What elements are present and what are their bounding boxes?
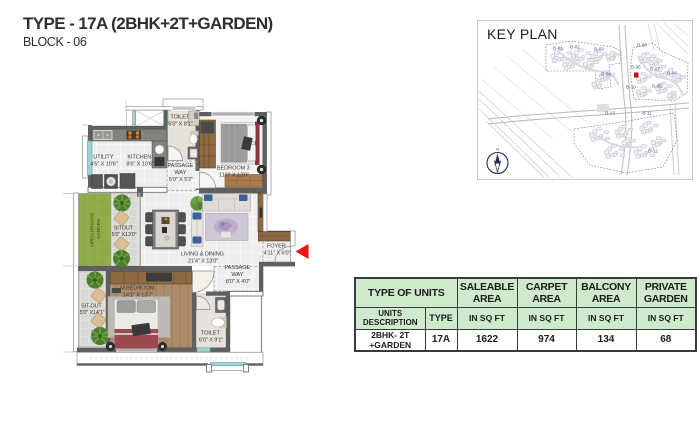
svg-text:BEDROOM 3 11'0" X 12'0": BEDROOM 3 11'0" X 12'0" <box>217 166 251 179</box>
svg-text:B-05: B-05 <box>652 84 662 89</box>
svg-text:SIT-OUT 5'0" X14'1": SIT-OUT 5'0" X14'1" <box>80 304 105 317</box>
svg-text:B-08: B-08 <box>667 71 677 76</box>
svg-text:SITOUT 5'0" X13'0": SITOUT 5'0" X13'0" <box>112 226 137 239</box>
svg-text:KITCHEN 8'6" X 10'6": KITCHEN 8'6" X 10'6" <box>126 155 153 168</box>
svg-text:B-01: B-01 <box>553 46 563 51</box>
svg-text:B-07: B-07 <box>650 67 660 72</box>
svg-text:M.BEDROOM 14'1" X 13'7": M.BEDROOM 14'1" X 13'7" <box>120 286 156 299</box>
svg-text:B-06: B-06 <box>637 43 647 48</box>
svg-text:TOILET 6'0" X 9'1": TOILET 6'0" X 9'1" <box>199 331 223 344</box>
svg-text:TOILET 5'0" X 8'1": TOILET 5'0" X 8'1" <box>168 115 192 128</box>
svg-text:B-06: B-06 <box>631 65 641 70</box>
svg-text:B-11: B-11 <box>642 111 652 116</box>
svg-text:UTILITY 4'5" X 10'6": UTILITY 4'5" X 10'6" <box>90 155 117 168</box>
svg-text:FOYER 4'11" X 6'0": FOYER 4'11" X 6'0" <box>264 244 291 257</box>
svg-text:N: N <box>496 147 499 152</box>
svg-text:B-12: B-12 <box>648 149 658 154</box>
svg-text:B-13: B-13 <box>605 111 615 116</box>
svg-text:B-10: B-10 <box>626 85 636 90</box>
svg-text:B-03: B-03 <box>594 47 604 52</box>
svg-text:B-04: B-04 <box>601 72 611 77</box>
svg-text:B-02: B-02 <box>570 45 580 50</box>
